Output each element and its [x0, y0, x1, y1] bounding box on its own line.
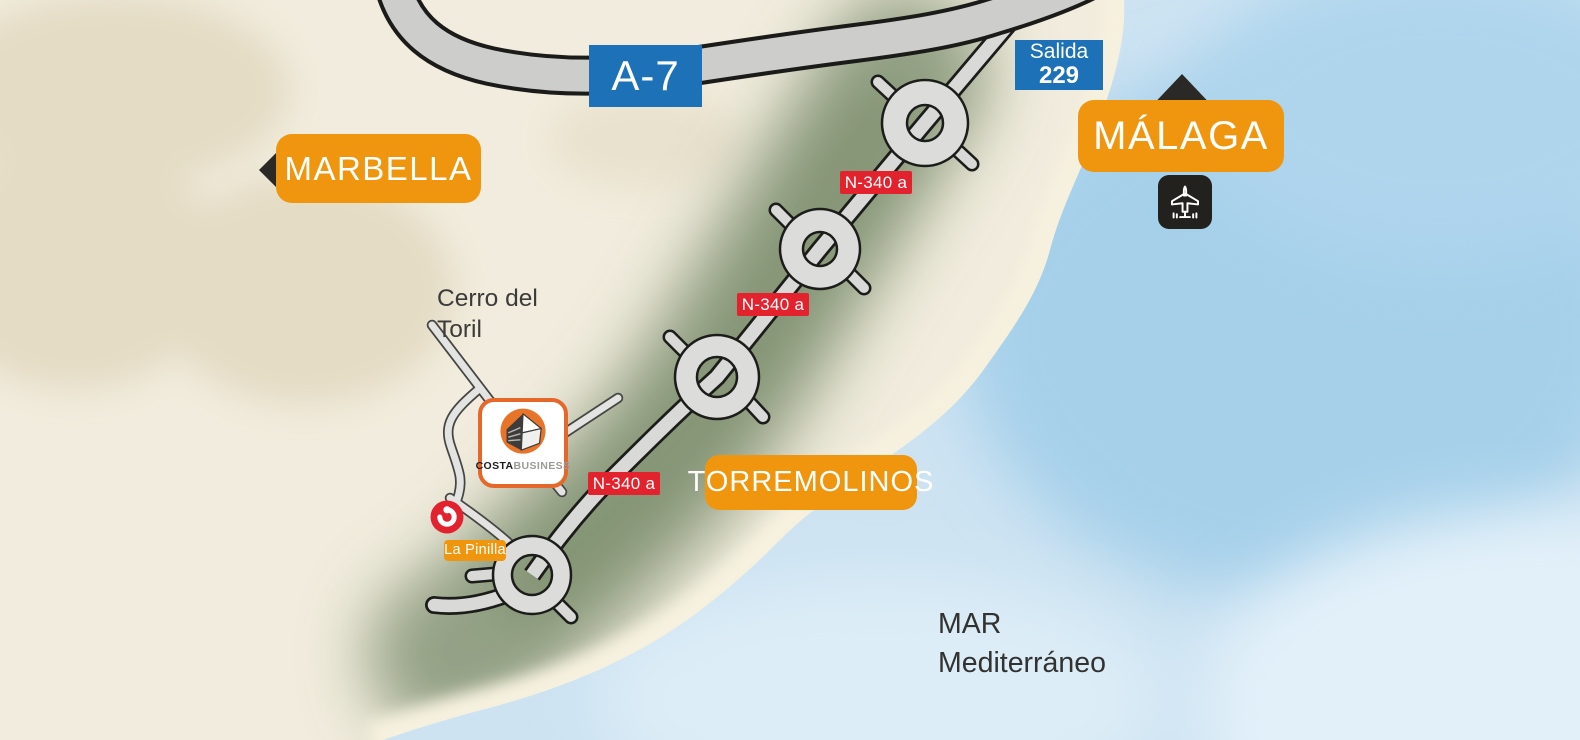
la-pinilla-label: La Pinilla — [444, 543, 506, 558]
logo-word-costa: COSTA — [476, 460, 514, 472]
cerro-line2: Toril — [437, 314, 538, 345]
mar-mediterraneo-label: MAR Mediterráneo — [938, 605, 1106, 683]
a7-label: A-7 — [611, 53, 679, 98]
mar-line1: MAR — [938, 605, 1106, 644]
torremolinos-sign: TORREMOLINOS — [705, 455, 917, 510]
map-canvas: A-7 Salida 229 MARBELLA MÁLAGA TORREMOLI… — [0, 0, 1580, 740]
costa-business-logo: COSTABUSINESS — [478, 398, 568, 488]
marbella-sign: MARBELLA — [276, 134, 481, 203]
n340-label-south: N-340 a — [588, 472, 660, 495]
malaga-sign: MÁLAGA — [1078, 100, 1284, 172]
exit-229-sign: Salida 229 — [1015, 40, 1103, 90]
marbella-label: MARBELLA — [284, 152, 472, 185]
logo-word-business: BUSINESS — [514, 460, 571, 472]
terrain-artwork — [0, 0, 1580, 740]
n340-text: N-340 a — [742, 295, 805, 315]
n340-text: N-340 a — [593, 474, 656, 494]
cerro-del-toril-label: Cerro del Toril — [437, 283, 538, 345]
la-pinilla-sign: La Pinilla — [444, 540, 506, 561]
costa-business-wordmark: COSTABUSINESS — [476, 461, 571, 472]
exit-number: 229 — [1039, 63, 1079, 89]
costa-business-mark-icon — [497, 406, 549, 458]
mar-line2: Mediterráneo — [938, 644, 1106, 683]
n340-text: N-340 a — [845, 173, 908, 193]
location-marker-icon — [431, 501, 464, 534]
n340-label-middle: N-340 a — [737, 293, 809, 316]
exit-word: Salida — [1030, 41, 1088, 64]
a7-highway-sign: A-7 — [589, 45, 702, 107]
cerro-line1: Cerro del — [437, 283, 538, 314]
torremolinos-label: TORREMOLINOS — [688, 468, 935, 497]
n340-label-north: N-340 a — [840, 171, 912, 194]
malaga-label: MÁLAGA — [1093, 116, 1269, 156]
airport-icon — [1158, 175, 1212, 229]
